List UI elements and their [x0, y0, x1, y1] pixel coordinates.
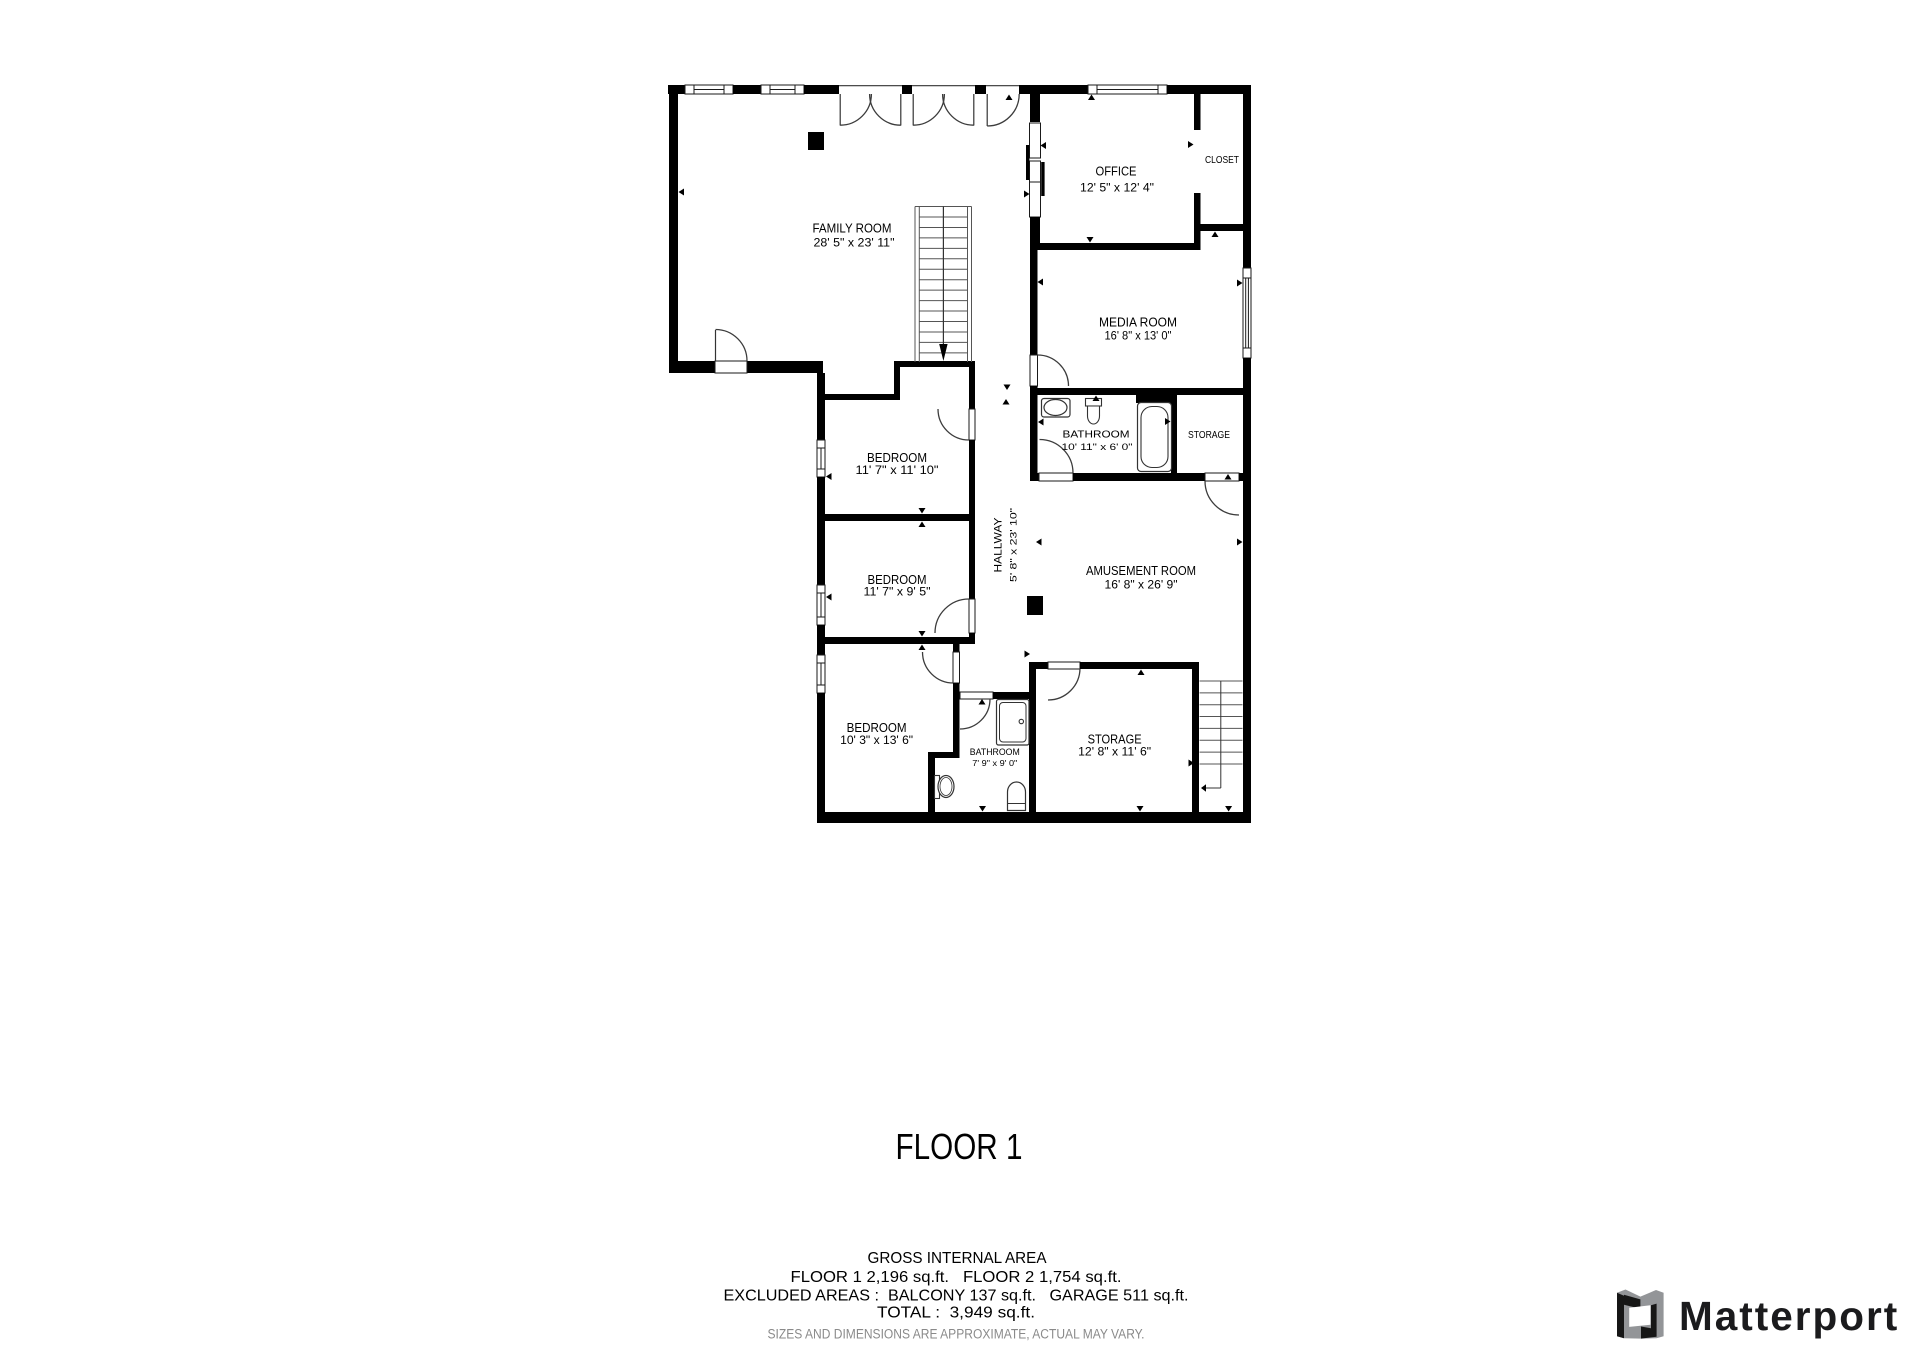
svg-text:11' 7" x 11' 10": 11' 7" x 11' 10": [856, 465, 939, 477]
svg-text:28' 5" x 23' 11": 28' 5" x 23' 11": [814, 237, 895, 249]
svg-text:7' 9" x 9' 0": 7' 9" x 9' 0": [972, 758, 1017, 768]
svg-text:5' 8" x 23' 10": 5' 8" x 23' 10": [1009, 508, 1020, 582]
svg-text:OFFICE: OFFICE: [1096, 164, 1137, 179]
svg-text:11' 7" x 9' 5": 11' 7" x 9' 5": [864, 587, 931, 599]
svg-text:FLOOR 1 2,196 sq.ft. FLOOR 2: FLOOR 1 2,196 sq.ft. FLOOR 2 1,754 sq.ft…: [791, 1269, 1122, 1286]
svg-text:HALLWAY: HALLWAY: [993, 517, 1005, 573]
svg-text:BEDROOM: BEDROOM: [868, 572, 927, 587]
svg-text:BEDROOM: BEDROOM: [867, 450, 927, 465]
svg-text:12' 5" x 12' 4": 12' 5" x 12' 4": [1080, 182, 1154, 194]
svg-text:10' 3" x 13' 6": 10' 3" x 13' 6": [840, 735, 913, 747]
svg-text:STORAGE: STORAGE: [1188, 430, 1230, 441]
svg-text:CLOSET: CLOSET: [1205, 155, 1239, 166]
svg-text:FAMILY ROOM: FAMILY ROOM: [813, 221, 892, 236]
svg-text:EXCLUDED AREAS : BALCONY 137: EXCLUDED AREAS : BALCONY 137 sq.ft. GARA…: [724, 1287, 1189, 1304]
svg-text:MEDIA ROOM: MEDIA ROOM: [1099, 315, 1177, 330]
svg-text:10' 11" x 6' 0": 10' 11" x 6' 0": [1062, 442, 1133, 453]
svg-text:Matterport: Matterport: [1679, 1293, 1899, 1339]
svg-text:STORAGE: STORAGE: [1088, 732, 1142, 747]
svg-text:GROSS INTERNAL AREA: GROSS INTERNAL AREA: [868, 1250, 1048, 1267]
svg-text:TOTAL : 3,949 sq.ft.: TOTAL : 3,949 sq.ft.: [877, 1305, 1035, 1322]
svg-text:BEDROOM: BEDROOM: [847, 720, 907, 735]
svg-text:BATHROOM: BATHROOM: [1063, 429, 1130, 441]
svg-text:BATHROOM: BATHROOM: [970, 747, 1020, 758]
svg-text:16' 8" x 26' 9": 16' 8" x 26' 9": [1105, 580, 1178, 592]
svg-text:FLOOR 1: FLOOR 1: [896, 1126, 1023, 1167]
svg-text:AMUSEMENT ROOM: AMUSEMENT ROOM: [1086, 563, 1196, 578]
svg-text:SIZES AND DIMENSIONS ARE APPRO: SIZES AND DIMENSIONS ARE APPROXIMATE, AC…: [768, 1327, 1145, 1342]
svg-text:16' 8" x 13' 0": 16' 8" x 13' 0": [1105, 331, 1172, 343]
svg-text:12' 8" x 11' 6": 12' 8" x 11' 6": [1078, 747, 1151, 759]
